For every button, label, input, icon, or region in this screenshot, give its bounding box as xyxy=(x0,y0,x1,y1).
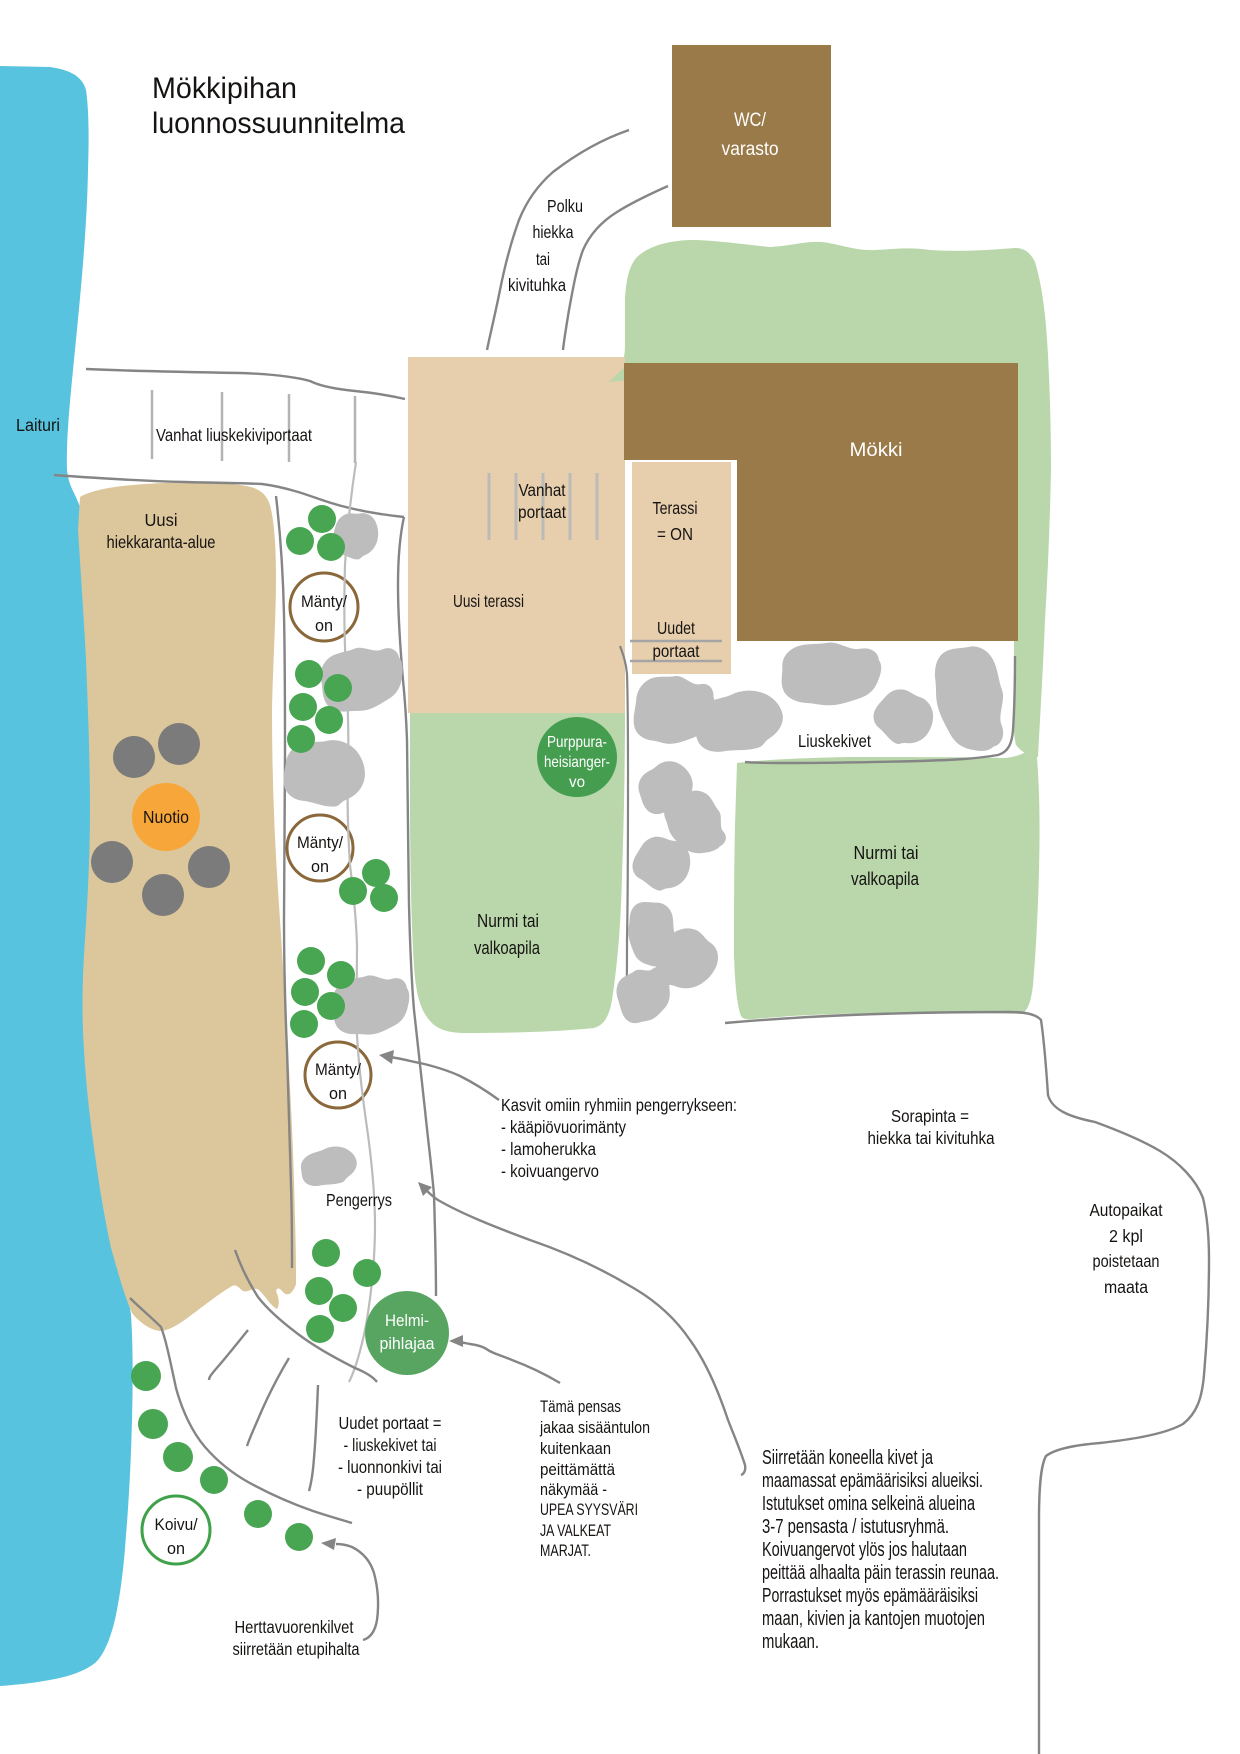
svg-text:Nuotio: Nuotio xyxy=(143,807,189,827)
svg-text:näkymää -: näkymää - xyxy=(540,1480,607,1499)
svg-text:MARJAT.: MARJAT. xyxy=(540,1541,591,1560)
svg-text:Nurmi tai: Nurmi tai xyxy=(854,843,919,863)
svg-text:2 kpl: 2 kpl xyxy=(1109,1226,1143,1246)
svg-text:valkoapila: valkoapila xyxy=(474,938,541,958)
svg-text:mukaan.: mukaan. xyxy=(762,1631,819,1653)
svg-text:Terassi: Terassi xyxy=(653,498,698,518)
svg-text:- luonnonkivi tai: - luonnonkivi tai xyxy=(338,1457,442,1477)
svg-text:on: on xyxy=(329,1084,347,1103)
svg-text:Autopaikat: Autopaikat xyxy=(1090,1200,1163,1220)
svg-text:Porrastukset myös epämääräisik: Porrastukset myös epämääräisiksi xyxy=(762,1585,978,1607)
svg-text:vo: vo xyxy=(569,774,585,791)
svg-text:- liuskekivet tai: - liuskekivet tai xyxy=(344,1435,437,1455)
svg-text:Pengerrys: Pengerrys xyxy=(326,1190,392,1210)
svg-text:Mänty/: Mänty/ xyxy=(315,1060,361,1079)
svg-text:Uudet portaat =: Uudet portaat = xyxy=(339,1413,442,1433)
svg-text:Uusi: Uusi xyxy=(145,510,178,530)
svg-text:hiekkaranta-alue: hiekkaranta-alue xyxy=(107,532,216,552)
svg-text:Helmi-: Helmi- xyxy=(385,1311,429,1330)
svg-text:Polku: Polku xyxy=(547,196,583,216)
svg-text:pihlajaa: pihlajaa xyxy=(380,1334,436,1353)
svg-text:varasto: varasto xyxy=(722,139,779,160)
svg-text:Mänty/: Mänty/ xyxy=(301,592,347,611)
svg-text:- kääpiövuorimänty: - kääpiövuorimänty xyxy=(501,1117,626,1137)
svg-text:peittämättä: peittämättä xyxy=(540,1460,615,1479)
svg-text:valkoapila: valkoapila xyxy=(851,869,920,889)
svg-text:Herttavuorenkilvet: Herttavuorenkilvet xyxy=(235,1617,354,1637)
svg-text:Koivu/: Koivu/ xyxy=(155,1515,198,1534)
svg-text:maata: maata xyxy=(1104,1277,1148,1297)
svg-text:tai: tai xyxy=(536,249,550,269)
svg-text:Vanhat: Vanhat xyxy=(519,480,566,500)
svg-text:Uudet: Uudet xyxy=(657,618,695,638)
svg-text:= ON: = ON xyxy=(657,524,693,544)
svg-text:portaat: portaat xyxy=(653,641,700,661)
svg-text:kuitenkaan: kuitenkaan xyxy=(540,1439,611,1458)
svg-text:Laituri: Laituri xyxy=(16,415,60,435)
svg-text:poistetaan: poistetaan xyxy=(1093,1251,1160,1271)
svg-text:Istutukset omina selkeinä alue: Istutukset omina selkeinä alueina xyxy=(762,1493,976,1515)
svg-text:maamassat epämäärisiksi alueik: maamassat epämäärisiksi alueiksi. xyxy=(762,1470,983,1492)
svg-text:UPEA SYYSVÄRI: UPEA SYYSVÄRI xyxy=(540,1500,638,1519)
svg-text:luonnossuunnitelma: luonnossuunnitelma xyxy=(152,107,405,140)
svg-text:heisianger-: heisianger- xyxy=(544,754,610,771)
svg-text:portaat: portaat xyxy=(518,502,566,522)
svg-text:- lamoherukka: - lamoherukka xyxy=(501,1139,596,1159)
svg-text:Purppura-: Purppura- xyxy=(547,734,607,751)
svg-text:Mökkipihan: Mökkipihan xyxy=(152,72,297,105)
svg-text:siirretään etupihalta: siirretään etupihalta xyxy=(233,1639,360,1659)
svg-text:peittää alhaalta päin terassin: peittää alhaalta päin terassin reunaa. xyxy=(762,1562,999,1584)
svg-text:kivituhka: kivituhka xyxy=(508,275,566,295)
svg-text:JA VALKEAT: JA VALKEAT xyxy=(540,1521,611,1540)
svg-text:Vanhat liuskekiviportaat: Vanhat liuskekiviportaat xyxy=(156,425,312,445)
svg-text:Tämä pensas: Tämä pensas xyxy=(540,1397,621,1416)
svg-text:Koivuangervot ylös jos halutaa: Koivuangervot ylös jos halutaan xyxy=(762,1539,967,1561)
svg-text:hiekka tai kivituhka: hiekka tai kivituhka xyxy=(868,1128,995,1148)
svg-text:Mänty/: Mänty/ xyxy=(297,833,343,852)
svg-text:Uusi terassi: Uusi terassi xyxy=(453,591,524,611)
svg-text:- puupöllit: - puupöllit xyxy=(357,1479,423,1499)
svg-text:jakaa sisääntulon: jakaa sisääntulon xyxy=(539,1418,650,1437)
svg-text:WC/: WC/ xyxy=(734,110,767,131)
svg-text:3-7 pensasta / istutusryhmä.: 3-7 pensasta / istutusryhmä. xyxy=(762,1516,949,1538)
svg-text:Mökki: Mökki xyxy=(850,440,903,461)
svg-text:Nurmi tai: Nurmi tai xyxy=(477,911,539,931)
svg-text:- koivuangervo: - koivuangervo xyxy=(501,1161,599,1181)
svg-text:on: on xyxy=(315,616,333,635)
svg-text:on: on xyxy=(167,1539,185,1558)
svg-text:hiekka: hiekka xyxy=(533,222,574,242)
svg-text:Siirretään koneella kivet ja: Siirretään koneella kivet ja xyxy=(762,1447,934,1469)
svg-text:on: on xyxy=(311,857,329,876)
svg-text:maan, kivien ja kantojen muoto: maan, kivien ja kantojen muotojen xyxy=(762,1608,985,1630)
svg-text:Liuskekivet: Liuskekivet xyxy=(798,731,871,751)
svg-text:Kasvit omiin ryhmiin pengerryk: Kasvit omiin ryhmiin pengerrykseen: xyxy=(501,1095,737,1115)
svg-text:Sorapinta =: Sorapinta = xyxy=(891,1106,969,1126)
